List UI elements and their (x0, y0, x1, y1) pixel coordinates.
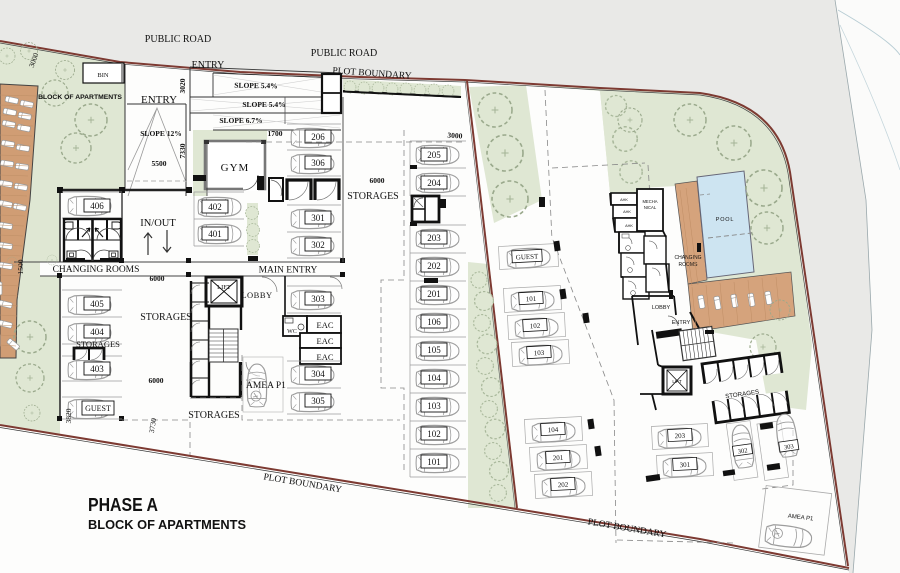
svg-text:203: 203 (674, 432, 685, 441)
svg-text:PUBLIC ROAD: PUBLIC ROAD (311, 48, 377, 59)
svg-text:6000: 6000 (150, 274, 165, 283)
svg-text:STORAGES: STORAGES (140, 312, 192, 323)
svg-text:101: 101 (427, 457, 441, 467)
svg-text:401: 401 (208, 229, 222, 239)
svg-text:206: 206 (311, 132, 325, 142)
svg-text:101: 101 (526, 295, 537, 304)
svg-text:6000: 6000 (370, 176, 385, 185)
svg-text:GUEST: GUEST (516, 252, 540, 261)
svg-text:406: 406 (90, 201, 104, 211)
svg-text:403: 403 (90, 364, 104, 374)
svg-text:5500: 5500 (152, 159, 167, 168)
svg-text:BIN: BIN (97, 72, 109, 79)
svg-text:BLOCK OF APARTMENTS: BLOCK OF APARTMENTS (88, 518, 246, 532)
svg-text:204: 204 (427, 178, 441, 188)
svg-text:203: 203 (427, 233, 441, 243)
svg-text:SLOPE 5.4%: SLOPE 5.4% (234, 81, 277, 91)
svg-text:ENTRY: ENTRY (672, 320, 691, 326)
svg-text:302: 302 (311, 240, 325, 250)
svg-text:BLOCK OF APARTMENTS: BLOCK OF APARTMENTS (38, 94, 122, 101)
svg-text:SLOPE 12%: SLOPE 12% (140, 129, 181, 138)
svg-text:CHANGING ROOMS: CHANGING ROOMS (53, 265, 140, 275)
svg-text:105: 105 (427, 345, 441, 355)
svg-text:EAC: EAC (317, 320, 334, 330)
svg-text:ENTRY: ENTRY (192, 60, 225, 71)
svg-text:LIFT: LIFT (217, 284, 231, 291)
svg-text:402: 402 (208, 202, 222, 212)
svg-text:304: 304 (311, 369, 325, 379)
svg-text:STORAGES: STORAGES (76, 339, 120, 349)
svg-text:201: 201 (553, 454, 564, 463)
svg-text:SLOPE 5.4%: SLOPE 5.4% (242, 100, 285, 109)
svg-text:103: 103 (534, 349, 545, 358)
svg-text:302: 302 (737, 447, 748, 455)
svg-text:IN/OUT: IN/OUT (140, 218, 176, 229)
svg-text:303: 303 (784, 443, 795, 451)
svg-text:6000: 6000 (149, 376, 164, 385)
svg-text:404: 404 (90, 327, 104, 337)
svg-text:WC: WC (287, 329, 297, 335)
svg-text:AHK: AHK (625, 224, 633, 228)
svg-text:ENTRY: ENTRY (141, 94, 177, 106)
svg-text:AHK: AHK (620, 198, 628, 202)
svg-text:MECHA: MECHA (642, 199, 657, 204)
svg-text:405: 405 (90, 299, 104, 309)
svg-text:MAIN ENTRY: MAIN ENTRY (259, 266, 318, 276)
svg-text:306: 306 (311, 158, 325, 168)
svg-text:1700: 1700 (268, 129, 283, 138)
svg-text:1500: 1500 (16, 259, 25, 274)
svg-text:103: 103 (427, 401, 441, 411)
svg-text:303: 303 (311, 294, 325, 304)
svg-text:102: 102 (530, 322, 541, 331)
svg-text:201: 201 (427, 289, 441, 299)
svg-text:PUBLIC ROAD: PUBLIC ROAD (145, 34, 211, 45)
svg-text:301: 301 (311, 213, 325, 223)
svg-text:102: 102 (427, 429, 441, 439)
svg-text:PHASE A: PHASE A (88, 495, 158, 515)
svg-text:LOBBY: LOBBY (241, 290, 272, 300)
svg-text:LOBBY: LOBBY (652, 305, 671, 311)
svg-text:205: 205 (427, 150, 441, 160)
svg-text:SLOPE 6.7%: SLOPE 6.7% (219, 116, 262, 125)
svg-text:EAC: EAC (317, 352, 334, 362)
svg-text:POOL: POOL (716, 217, 734, 223)
svg-text:3820: 3820 (64, 408, 73, 423)
svg-text:LIFT: LIFT (672, 379, 682, 384)
svg-text:3020: 3020 (178, 78, 187, 93)
svg-text:7330: 7330 (178, 143, 187, 158)
svg-text:106: 106 (427, 317, 441, 327)
svg-text:104: 104 (548, 426, 559, 435)
svg-text:GYM: GYM (221, 162, 250, 174)
svg-text:301: 301 (679, 461, 690, 470)
svg-text:305: 305 (311, 396, 325, 406)
svg-text:NICAL: NICAL (644, 205, 657, 210)
svg-text:STORAGES: STORAGES (188, 410, 240, 421)
svg-text:AHK: AHK (623, 210, 631, 214)
svg-text:EAC: EAC (317, 336, 334, 346)
svg-text:AMEA P1: AMEA P1 (246, 381, 286, 391)
svg-text:3000: 3000 (447, 130, 463, 140)
svg-text:104: 104 (427, 373, 441, 383)
svg-text:GUEST: GUEST (85, 404, 111, 413)
svg-text:202: 202 (558, 481, 569, 490)
svg-text:STORAGES: STORAGES (347, 191, 399, 202)
svg-text:202: 202 (427, 261, 441, 271)
